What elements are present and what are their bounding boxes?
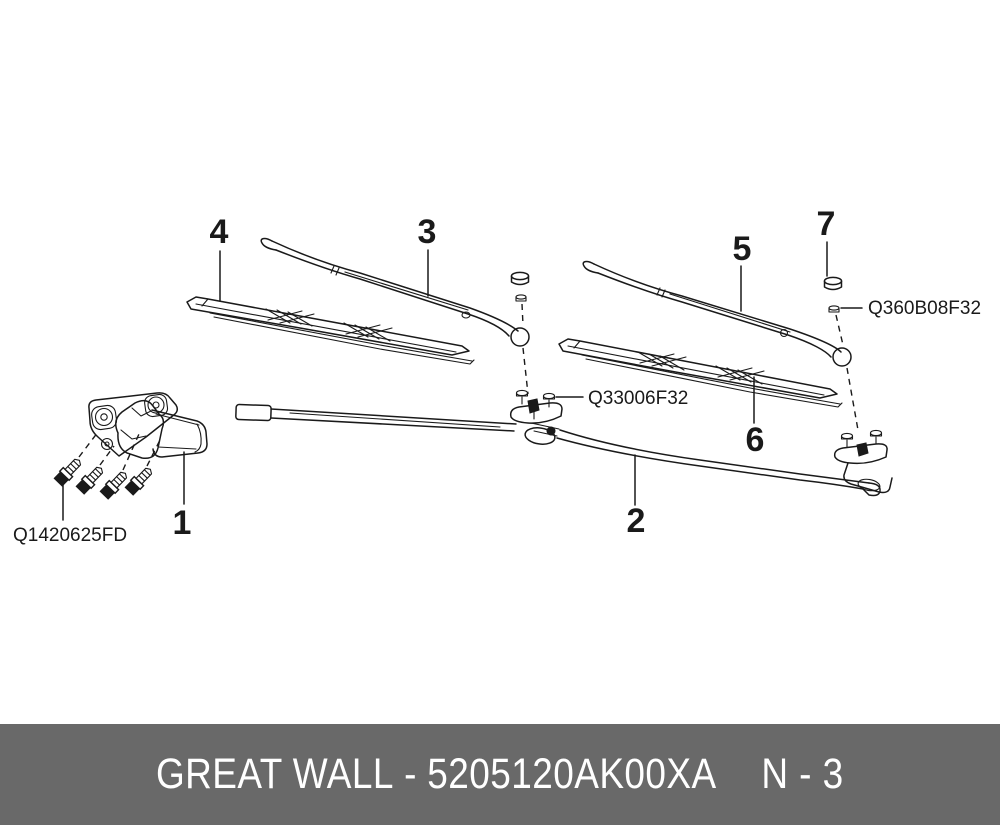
wiper-linkage [236,390,880,495]
footer-separator: - [404,750,417,799]
callout-4: 4 [210,213,229,251]
right-pivot-cap-part7 [825,277,859,430]
callout-7: 7 [817,205,836,243]
wiper-blade-left [187,297,474,364]
callout-3: 3 [418,213,437,251]
right-pivot-assembly [835,430,892,492]
callout-5: 5 [733,230,752,268]
callout-6: 6 [746,421,765,459]
callout-1: 1 [173,504,192,542]
part-code-right-nut: Q360B08F32 [868,298,981,319]
page-reference: N - 3 [762,750,844,799]
part-code-bolts: Q1420625FD [13,525,127,546]
wiper-motor [89,393,207,458]
footer-text: GREAT WALL - 5205120AK00XA N - 3 [156,750,844,799]
parts-catalog-page: 1 2 3 4 5 6 7 Q1420625FD Q33006F32 Q360B… [0,0,1000,825]
wiper-arm-right [583,262,851,366]
callout-leaders [63,242,862,520]
part-code-left-nuts: Q33006F32 [588,388,688,409]
part-number: 5205120AK00XA [427,750,716,799]
wiper-assembly-diagram: 1 2 3 4 5 6 7 Q1420625FD Q33006F32 Q360B… [0,0,1000,724]
callout-2: 2 [627,502,646,540]
left-pivot-cap [512,272,529,394]
footer-banner: GREAT WALL - 5205120AK00XA N - 3 [0,724,1000,825]
brand-name: GREAT WALL [156,750,394,799]
